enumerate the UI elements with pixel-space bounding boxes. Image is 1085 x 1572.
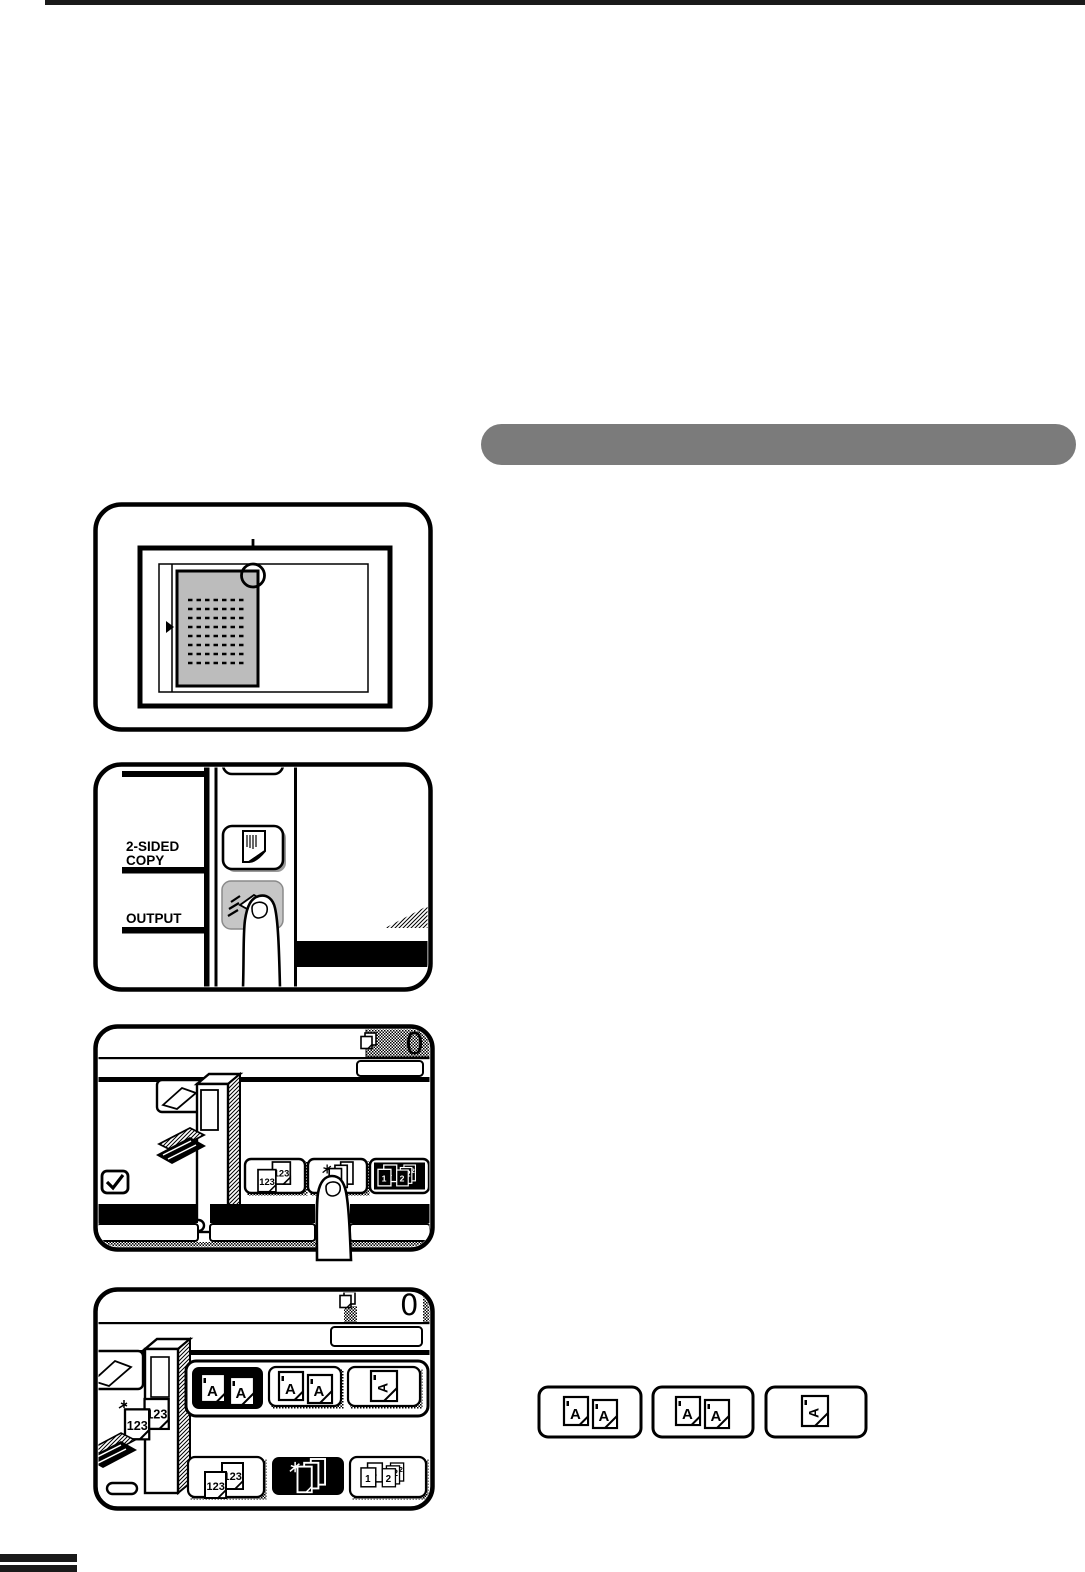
- rotated-original-key-icon: [766, 1387, 866, 1437]
- staple-sort-button: [272, 1457, 344, 1495]
- group-button: [350, 1457, 426, 1497]
- copy-count: 0: [400, 1288, 418, 1322]
- group-icon: [378, 1165, 415, 1186]
- top-rule: [45, 0, 1085, 5]
- manual-page: A A A: [0, 0, 1085, 1572]
- partial-key: [223, 744, 283, 774]
- illustration-document-glass: [93, 502, 433, 732]
- finger: [317, 1176, 351, 1260]
- illustration-output-screen: 0: [93, 1024, 435, 1266]
- sort-button: [245, 1159, 305, 1193]
- group-button: [370, 1159, 429, 1193]
- two-sided-copy-key: [223, 826, 283, 869]
- page-tab-bar: [0, 1554, 77, 1562]
- one-sided-to-one-sided-button: [192, 1367, 263, 1409]
- check-button: [102, 1171, 128, 1193]
- screen-rule-thick: [97, 1077, 430, 1082]
- finger: [243, 896, 280, 988]
- panel-black-bar: [296, 941, 430, 967]
- rotated-original-icon: [371, 1371, 397, 1401]
- sort-button: [188, 1457, 264, 1498]
- illustration-control-panel: 2-SIDED COPY OUTPUT: [93, 762, 433, 992]
- group-icon: [361, 1463, 404, 1487]
- section-title-bar: [481, 424, 1076, 465]
- key-strip-line: [215, 767, 218, 987]
- screen-rule: [97, 1057, 430, 1059]
- one-sided-to-two-sided-key-icon: [539, 1387, 641, 1437]
- counter-area: [344, 1306, 357, 1322]
- page-tab-bar: [0, 1565, 77, 1572]
- output-label: OUTPUT: [126, 911, 182, 926]
- illustration-two-sided-screen: 0: [93, 1287, 435, 1511]
- message-display: [357, 1061, 423, 1076]
- message-display: [331, 1327, 422, 1346]
- label-rule: [122, 771, 204, 777]
- panel-divider: [204, 767, 210, 987]
- rotated-original-button: [348, 1367, 420, 1406]
- two-sided-copy-label: 2-SIDED: [126, 839, 180, 854]
- screen-rule: [97, 1322, 430, 1324]
- screen-key-row: [97, 1204, 430, 1248]
- two-sided-copy-label: COPY: [126, 853, 164, 868]
- one-sided-to-two-sided-button: [269, 1367, 341, 1406]
- label-rule: [122, 927, 204, 934]
- two-sided-mode-icon-row: [537, 1385, 871, 1443]
- two-sided-to-two-sided-key-icon: [653, 1387, 753, 1437]
- original-document: [177, 571, 258, 686]
